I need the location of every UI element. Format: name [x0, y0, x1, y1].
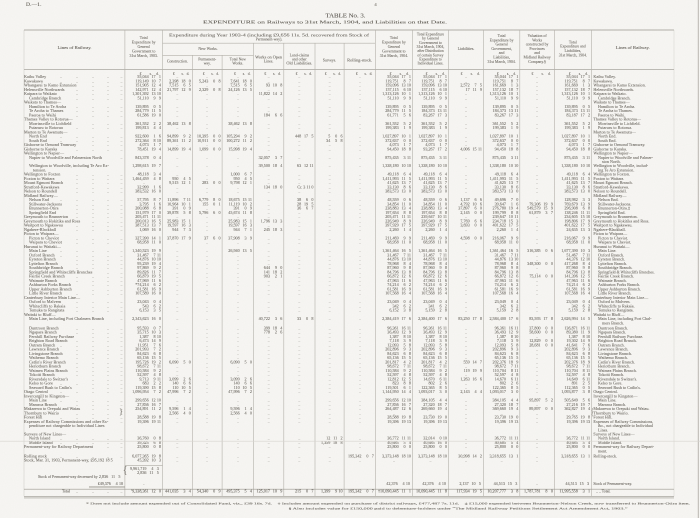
svg-text:..: ..	[76, 147, 78, 151]
svg-text:16: 16	[151, 291, 155, 296]
svg-text:8: 8	[159, 444, 161, 449]
svg-text:..: ..	[329, 112, 331, 117]
svg-text:2: 2	[551, 398, 553, 403]
svg-text:..: ..	[465, 308, 467, 313]
svg-text:s.: s.	[304, 72, 306, 76]
svg-text:8: 8	[219, 87, 221, 92]
svg-text:13: 13	[509, 453, 513, 458]
svg-text:0: 0	[583, 444, 585, 449]
svg-text:Napier to Woodville and Palmer: Napier to Woodville and Palmerston North	[29, 155, 103, 160]
svg-text:4: 4	[159, 125, 161, 130]
svg-text:0: 0	[516, 389, 518, 394]
svg-text:5: 5	[159, 308, 161, 313]
svg-text:£: £	[356, 72, 358, 76]
svg-text:18: 18	[401, 146, 405, 151]
svg-text:..: ..	[107, 241, 109, 245]
svg-text:18: 18	[581, 146, 585, 151]
svg-text:..: ..	[298, 291, 300, 296]
svg-text:2: 2	[280, 91, 282, 96]
svg-text:16: 16	[401, 291, 405, 296]
svg-text:d.: d.	[216, 72, 219, 76]
svg-text:..: ..	[359, 227, 361, 232]
svg-text:..: ..	[76, 331, 78, 335]
svg-text:..: ..	[206, 316, 208, 321]
svg-text:4: 4	[189, 489, 191, 494]
svg-text:..: ..	[76, 228, 78, 232]
svg-text:6: 6	[516, 316, 518, 321]
svg-text:8: 8	[545, 489, 547, 494]
svg-text:9: 9	[588, 95, 590, 100]
svg-text:..: ..	[536, 95, 538, 100]
svg-text:..: ..	[143, 482, 145, 486]
svg-text:5: 5	[183, 359, 185, 364]
svg-text:s.: s.	[211, 72, 213, 76]
svg-text:..: ..	[298, 189, 300, 194]
svg-text:..: ..	[107, 228, 109, 232]
svg-text:..: ..	[206, 163, 208, 168]
svg-text:8: 8	[516, 489, 518, 494]
svg-text:..: ..	[430, 458, 432, 463]
svg-text:10: 10	[471, 481, 475, 486]
svg-text:..: ..	[121, 445, 123, 449]
svg-text:..: ..	[359, 146, 361, 151]
svg-text:184: 184	[264, 112, 270, 117]
svg-text:0: 0	[588, 240, 590, 245]
svg-text:..: ..	[298, 419, 300, 424]
svg-text:3: 3	[183, 489, 185, 494]
svg-text:..: ..	[298, 444, 300, 449]
svg-text:0: 0	[545, 261, 547, 266]
svg-text:Rolling-stock.: Rolling-stock.	[347, 58, 372, 62]
svg-text:0: 0	[159, 291, 161, 296]
svg-text:..: ..	[465, 240, 467, 245]
svg-text:0: 0	[213, 146, 215, 151]
svg-text:..: ..	[92, 309, 94, 313]
svg-text:..: ..	[536, 458, 538, 463]
svg-text:..: ..	[176, 419, 178, 424]
svg-text:0: 0	[189, 359, 191, 364]
svg-text:Individual Lines.: Individual Lines.	[418, 62, 444, 66]
svg-text:..: ..	[237, 291, 239, 296]
svg-text:d.: d.	[278, 72, 281, 76]
svg-text:0: 0	[213, 201, 215, 206]
svg-text:7: 7	[159, 163, 161, 168]
svg-text:6: 6	[213, 235, 215, 240]
svg-text:..: ..	[359, 458, 361, 463]
svg-text:Government to: Government to	[382, 49, 406, 53]
svg-text:9: 9	[511, 95, 513, 100]
svg-text:18: 18	[273, 163, 277, 168]
svg-text:0: 0	[404, 444, 406, 449]
svg-text:7: 7	[372, 489, 374, 494]
svg-text:13: 13	[581, 227, 585, 232]
svg-text:£: £	[173, 72, 175, 76]
svg-text:1: 1	[511, 125, 513, 130]
svg-text:3: 3	[511, 389, 513, 394]
svg-text:0: 0	[545, 342, 547, 347]
svg-text:5: 5	[335, 138, 337, 143]
svg-text:10: 10	[509, 163, 513, 168]
svg-text:7: 7	[154, 389, 156, 394]
svg-text:..: ..	[359, 308, 361, 313]
svg-text:2: 2	[511, 308, 513, 313]
svg-text:s.: s.	[364, 72, 366, 76]
svg-text:1: 1	[280, 274, 282, 279]
svg-text:0: 0	[219, 180, 221, 185]
svg-text:..: ..	[76, 390, 78, 394]
svg-text:19: 19	[509, 406, 513, 411]
svg-text:..: ..	[206, 189, 208, 194]
svg-text:7: 7	[280, 155, 282, 160]
svg-text:..: ..	[92, 390, 94, 394]
svg-text:11: 11	[402, 240, 406, 245]
svg-text:8: 8	[588, 308, 590, 313]
svg-text:..: ..	[268, 189, 270, 194]
svg-text:..: ..	[536, 419, 538, 424]
svg-text:..: ..	[76, 309, 78, 313]
svg-text:..: ..	[536, 163, 538, 168]
svg-text:Expenditure by: Expenditure by	[132, 41, 156, 45]
svg-text:3: 3	[440, 155, 442, 160]
svg-text:..: ..	[76, 490, 78, 494]
svg-text:5: 5	[588, 316, 590, 321]
svg-text:Lines of Railway.: Lines of Railway.	[616, 45, 650, 50]
svg-text:..: ..	[465, 155, 467, 160]
svg-text:17: 17	[401, 316, 405, 321]
svg-text:7: 7	[245, 389, 247, 394]
svg-text:..: ..	[92, 292, 94, 296]
svg-text:4: 4	[475, 389, 477, 394]
svg-text:..: ..	[92, 490, 94, 494]
svg-text:..: ..	[121, 228, 123, 232]
svg-text:0: 0	[366, 489, 368, 494]
svg-text:0: 0	[445, 189, 447, 194]
svg-text:..: ..	[359, 389, 361, 394]
svg-text:7: 7	[311, 206, 313, 211]
svg-text:..: ..	[268, 146, 270, 151]
svg-text:16: 16	[437, 291, 441, 296]
svg-text:0: 0	[213, 78, 215, 83]
svg-text:..: ..	[298, 155, 300, 160]
svg-text:7: 7	[372, 453, 374, 458]
svg-text:15: 15	[508, 481, 512, 486]
svg-text:d.: d.	[187, 72, 190, 76]
svg-text:4: 4	[480, 389, 482, 394]
svg-text:..: ..	[329, 458, 331, 463]
svg-text:..: ..	[176, 163, 178, 168]
svg-text:..: ..	[237, 444, 239, 449]
svg-text:10: 10	[437, 163, 441, 168]
svg-text:8: 8	[588, 146, 590, 151]
svg-text:s.: s.	[333, 72, 335, 76]
svg-text:19: 19	[509, 419, 513, 424]
svg-text:10: 10	[273, 489, 277, 494]
svg-text:..: ..	[206, 240, 208, 245]
svg-text:..: ..	[298, 112, 300, 117]
svg-text:..: ..	[393, 458, 395, 463]
svg-text:0: 0	[588, 444, 590, 449]
svg-text:£: £	[203, 72, 205, 76]
svg-text:3: 3	[440, 389, 442, 394]
svg-text:0: 0	[511, 444, 513, 449]
svg-text:..: ..	[206, 227, 208, 232]
svg-text:6: 6	[275, 112, 277, 117]
svg-text:0: 0	[250, 359, 252, 364]
svg-text:0: 0	[219, 210, 221, 215]
svg-text:..: ..	[176, 155, 178, 160]
svg-text:11: 11	[181, 138, 185, 143]
svg-text:..: ..	[76, 279, 78, 283]
svg-text:245: 245	[264, 227, 270, 232]
svg-text:..: ..	[359, 419, 361, 424]
svg-text:d.: d.	[338, 72, 341, 76]
svg-text:1: 1	[404, 125, 406, 130]
svg-text:0: 0	[545, 406, 547, 411]
svg-text:8: 8	[189, 210, 191, 215]
svg-text:..: ..	[536, 155, 538, 160]
svg-text:£: £	[531, 72, 533, 76]
svg-text:New Works.: New Works.	[198, 47, 217, 51]
svg-text:5: 5	[479, 481, 481, 486]
svg-text:..: ..	[268, 240, 270, 245]
svg-text:10: 10	[586, 163, 590, 168]
svg-text:3: 3	[404, 308, 406, 313]
svg-text:1: 1	[440, 125, 442, 130]
svg-text:..: ..	[359, 155, 361, 160]
svg-text:..: ..	[76, 113, 78, 117]
svg-text:..: ..	[176, 125, 178, 130]
svg-text:14: 14	[273, 91, 277, 96]
svg-text:16: 16	[581, 291, 585, 296]
svg-text:5: 5	[250, 248, 252, 253]
svg-text:4: 4	[439, 481, 441, 486]
svg-text:..: ..	[536, 189, 538, 194]
svg-text:..: ..	[359, 189, 361, 194]
svg-text:..: ..	[121, 156, 123, 160]
svg-text:..: ..	[268, 419, 270, 424]
svg-text:..: ..	[176, 316, 178, 321]
svg-text:Southbridge Branch.: Southbridge Branch.	[598, 265, 632, 270]
svg-text:4: 4	[245, 410, 247, 415]
svg-text:£: £	[461, 72, 463, 76]
svg-text:11: 11	[438, 489, 442, 494]
svg-text:..: ..	[536, 125, 538, 130]
svg-text:..: ..	[107, 190, 109, 194]
svg-text:9: 9	[189, 87, 191, 92]
svg-text:..: ..	[121, 292, 123, 296]
svg-text:18: 18	[273, 184, 277, 189]
svg-text:10: 10	[581, 163, 585, 168]
svg-text:3: 3	[516, 112, 518, 117]
svg-text:4: 4	[445, 291, 447, 296]
svg-text:10: 10	[401, 163, 405, 168]
svg-text:8: 8	[311, 316, 313, 321]
svg-text:..: ..	[206, 291, 208, 296]
svg-text:..: ..	[121, 454, 123, 458]
svg-text:..: ..	[176, 240, 178, 245]
svg-text:11: 11	[243, 138, 247, 143]
svg-text:Surveys.: Surveys.	[323, 58, 337, 62]
svg-text:{: {	[123, 465, 128, 476]
svg-text:13: 13	[581, 453, 585, 458]
svg-text:15: 15	[472, 146, 476, 151]
svg-text:0: 0	[213, 489, 215, 494]
svg-text:6: 6	[280, 112, 282, 117]
svg-text:}: }	[119, 407, 123, 417]
svg-text:0: 0	[551, 274, 553, 279]
svg-text:4: 4	[159, 146, 161, 151]
svg-text:10: 10	[151, 458, 155, 463]
svg-text:1: 1	[250, 180, 252, 185]
svg-text:..: ..	[121, 190, 123, 194]
svg-text:17: 17	[437, 316, 441, 321]
svg-text:s.: s.	[243, 72, 245, 76]
svg-text:10: 10	[338, 489, 342, 494]
svg-text:10: 10	[442, 481, 446, 486]
svg-text:..: ..	[298, 458, 300, 463]
svg-text:6: 6	[445, 316, 447, 321]
svg-text:14: 14	[472, 453, 476, 458]
svg-text:3: 3	[511, 489, 513, 494]
svg-text:0: 0	[219, 235, 221, 240]
svg-text:Total: Total	[140, 36, 148, 40]
svg-text:7: 7	[551, 210, 553, 215]
svg-text:..: ..	[572, 458, 574, 463]
svg-text:19: 19	[472, 368, 476, 373]
svg-text:Total: Total	[62, 490, 70, 494]
svg-text:..: ..	[107, 490, 109, 494]
svg-text:s.: s.	[541, 72, 543, 76]
svg-text:10: 10	[443, 163, 447, 168]
svg-text:4: 4	[189, 146, 191, 151]
svg-text:13: 13	[407, 419, 411, 424]
svg-text:..: ..	[237, 125, 239, 130]
svg-text:5: 5	[157, 470, 159, 475]
svg-text:9: 9	[583, 95, 585, 100]
svg-text:Permanent-way for Railway Depa: Permanent-way for Railway Department	[24, 444, 94, 449]
svg-text:3: 3	[404, 155, 406, 160]
svg-text:3: 3	[588, 227, 590, 232]
svg-text:17: 17	[543, 316, 547, 321]
svg-text:..: ..	[60, 253, 62, 257]
svg-text:d.: d.	[548, 72, 551, 76]
svg-text:10: 10	[273, 83, 277, 88]
svg-text:12: 12	[181, 87, 185, 92]
svg-text:0: 0	[545, 248, 547, 253]
svg-text:..: ..	[359, 125, 361, 130]
svg-text:11: 11	[310, 163, 314, 168]
svg-text:..: ..	[60, 399, 62, 403]
svg-text:11: 11	[152, 240, 156, 245]
svg-text:Permanent-way).: Permanent-way).	[256, 38, 283, 42]
svg-text:8: 8	[250, 210, 252, 215]
svg-text:17: 17	[181, 235, 185, 240]
svg-text:Stock of Permanent-way.: Stock of Permanent-way.	[593, 482, 632, 486]
svg-text:..: ..	[206, 389, 208, 394]
svg-text:..: ..	[268, 389, 270, 394]
svg-text:12: 12	[151, 489, 155, 494]
svg-text:..: ..	[465, 189, 467, 194]
svg-text:6: 6	[409, 406, 411, 411]
svg-text:16: 16	[472, 376, 476, 381]
svg-text:..: ..	[536, 227, 538, 232]
svg-text:..: ..	[268, 291, 270, 296]
svg-text:8: 8	[516, 146, 518, 151]
svg-text:17: 17	[472, 316, 476, 321]
svg-text:s.: s.	[273, 72, 275, 76]
svg-text:13: 13	[509, 189, 513, 194]
svg-text:..: ..	[298, 389, 300, 394]
svg-text:9: 9	[445, 125, 447, 130]
svg-text:..: ..	[465, 419, 467, 424]
svg-text:Stock of Permanent-way decreas: Stock of Permanent-way decreased by	[38, 475, 98, 479]
svg-text:..: ..	[465, 444, 467, 449]
svg-text:7: 7	[480, 359, 482, 364]
svg-text:4: 4	[445, 406, 447, 411]
svg-text:..: ..	[121, 147, 123, 151]
svg-text:6: 6	[409, 316, 411, 321]
svg-text:0: 0	[551, 261, 553, 266]
svg-text:s.: s.	[181, 72, 183, 76]
svg-text:2: 2	[189, 138, 191, 143]
svg-text:..: ..	[176, 112, 178, 117]
svg-text:0: 0	[516, 240, 518, 245]
svg-text:14: 14	[401, 389, 405, 394]
svg-text:3: 3	[154, 308, 156, 313]
svg-text:10: 10	[443, 453, 447, 458]
svg-text:9: 9	[189, 235, 191, 240]
svg-text:..: ..	[536, 291, 538, 296]
svg-text:2: 2	[159, 389, 161, 394]
svg-text:1: 1	[409, 489, 411, 494]
svg-text:17: 17	[304, 134, 308, 139]
svg-text:5: 5	[118, 474, 120, 479]
svg-text:4: 4	[516, 227, 518, 232]
svg-text:way.: way.	[204, 62, 211, 66]
svg-text:..: ..	[359, 316, 361, 321]
svg-text:9: 9	[219, 489, 221, 494]
svg-text:4: 4	[516, 406, 518, 411]
svg-text:4: 4	[250, 146, 252, 151]
svg-text:0: 0	[440, 444, 442, 449]
svg-text:..: ..	[268, 458, 270, 463]
svg-text:..: ..	[359, 444, 361, 449]
svg-text:2: 2	[480, 453, 482, 458]
svg-text:..: ..	[92, 241, 94, 245]
svg-text:8: 8	[250, 121, 252, 126]
svg-text:0: 0	[213, 138, 215, 143]
svg-text:..: ..	[329, 125, 331, 130]
svg-text:2: 2	[250, 389, 252, 394]
svg-text:Lines.: Lines.	[264, 60, 274, 64]
svg-text:8: 8	[445, 308, 447, 313]
svg-text:12: 12	[181, 180, 185, 185]
svg-text:0: 0	[551, 489, 553, 494]
svg-text:0: 0	[445, 389, 447, 394]
svg-text:19: 19	[581, 419, 585, 424]
svg-text:3: 3	[245, 235, 247, 240]
svg-text:..: ..	[329, 389, 331, 394]
svg-text:17: 17	[509, 316, 513, 321]
svg-text:6: 6	[280, 316, 282, 321]
svg-text:5: 5	[245, 359, 247, 364]
svg-text:0: 0	[159, 112, 161, 117]
svg-text:16: 16	[151, 189, 155, 194]
svg-text:d.: d.	[370, 72, 373, 76]
svg-text:2: 2	[275, 330, 277, 335]
svg-text:Rolling-stock.: Rolling-stock.	[593, 453, 617, 458]
svg-text:18: 18	[333, 440, 337, 445]
